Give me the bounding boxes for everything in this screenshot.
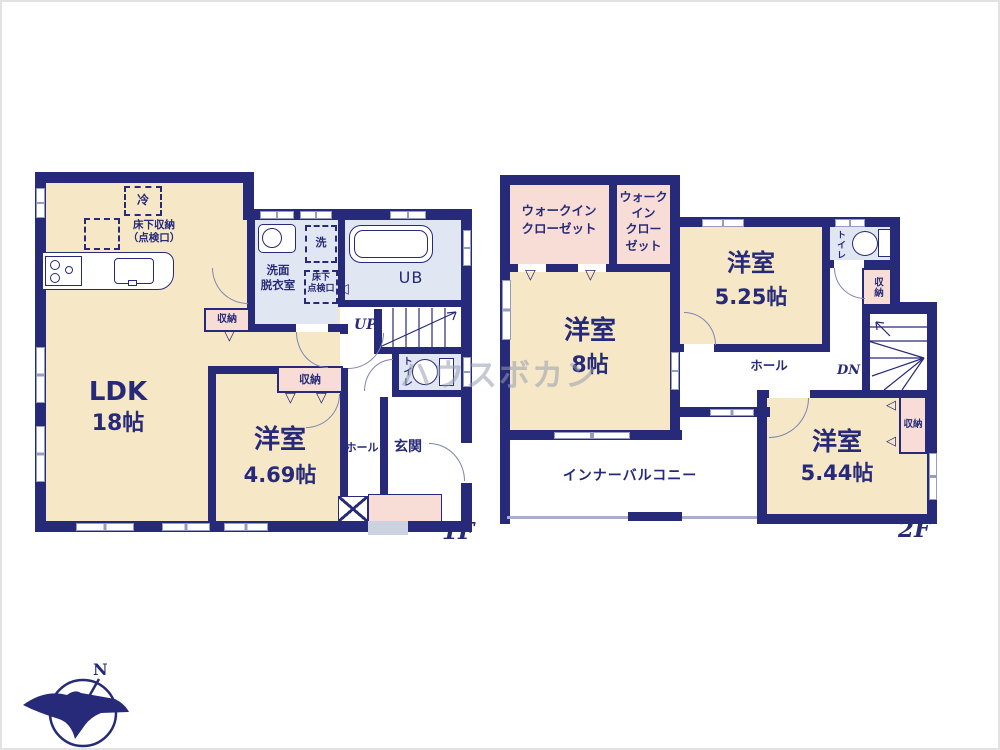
wic-small-line2: イン [631, 206, 655, 220]
label-washroom: 洗面 脱衣室 [254, 263, 302, 293]
stairs-down-2f [868, 314, 927, 390]
door-arc-toilet-2f [834, 268, 865, 299]
closet-bedroom-door-mark-2: ▽ [316, 391, 327, 405]
underfloor-storage-line1: 床下収納 [133, 219, 175, 231]
window-toilet-top-2f [835, 219, 865, 227]
window-room8-left [502, 280, 511, 340]
wall-washroom-bottom-a [254, 324, 296, 332]
wall-525-right [822, 217, 830, 352]
wic-small-door-mark: ▷ [670, 243, 680, 256]
door-arc-entrance [429, 443, 465, 481]
toilet-door-opening-2f [834, 260, 864, 268]
kitchen-faucet [128, 280, 137, 286]
window-room8-balcony [554, 432, 630, 439]
window-hall-balcony [710, 409, 754, 416]
washbasin-bowl [262, 228, 282, 248]
label-entrance: 玄関 [390, 439, 426, 457]
floorplan-image: 冷 床下収納 （点検口） 洗 床下 点検口 収納 収納 ▽ ▽ ▽ ◁ [0, 0, 1000, 750]
label-bedroom-1f-name: 洋室 [242, 424, 318, 457]
wic-small-line4: ゼット [625, 239, 661, 253]
wall-ub-bottom [338, 300, 461, 307]
closet-bedroom-door-mark-1: ▽ [285, 391, 296, 405]
room8-door-opening [671, 352, 679, 390]
toilet-tank-2f [878, 229, 891, 257]
wall-entrance-divider [380, 397, 388, 496]
label-up: UP [354, 317, 377, 333]
window-ub-right [463, 230, 471, 266]
underfloor-storage-line2: （点検口） [128, 232, 181, 244]
entrance-storage-x [338, 496, 368, 522]
hatch-line1: 床下 [312, 273, 330, 283]
underfloor-storage-label: 床下収納 （点検口） [110, 219, 198, 245]
wic-door-mark-2: ▽ [585, 268, 596, 282]
window-525-top [702, 219, 744, 227]
label-toilet-2f: トイレ [833, 229, 845, 260]
window-ldk-left-2 [36, 347, 45, 403]
closet-hall-2f-label: 収納 [871, 277, 883, 298]
label-balcony: インナーバルコニー [550, 468, 710, 486]
label-room8-name: 洋室 [550, 315, 630, 348]
window-ldk-bottom-1 [76, 523, 134, 531]
label-floor-2f: 2F [898, 516, 930, 543]
wall-2f-mid-vertical [670, 175, 680, 439]
label-544-size: 5.44帖 [794, 460, 880, 486]
hatch-line2: 点検口 [307, 284, 334, 294]
entrance-porch-step [368, 521, 408, 535]
fridge-label: 冷 [124, 193, 162, 208]
label-wic-small: ウォーク イン クロー ゼット [617, 189, 670, 254]
wic-large-line2: クローゼット [521, 221, 596, 236]
closet-ldk-door-mark: ▽ [224, 329, 235, 343]
toilet-bowl-2f [852, 231, 878, 256]
wic-large-line1: ウォークイン [521, 203, 596, 218]
label-ub: UB [388, 268, 434, 288]
wic-small-line1: ウォーク [619, 190, 667, 204]
bathtub-inner [354, 230, 428, 258]
window-washroom-top [260, 211, 294, 219]
window-bedroom-bottom [224, 523, 268, 531]
washer-label: 洗 [305, 236, 337, 250]
window-ldk-left-1 [36, 188, 45, 218]
stove-burner-1 [50, 260, 60, 270]
balcony-edge-segment [628, 512, 682, 521]
window-ldk-bottom-2 [162, 523, 210, 531]
label-dn: DN [837, 363, 860, 378]
compass-north-label: N [93, 660, 108, 679]
stairs-up-1f [380, 308, 460, 348]
label-ldk-size: 18帖 [62, 410, 174, 438]
stove-burner-3 [65, 266, 73, 274]
window-ub-top [390, 211, 426, 219]
compass: N [17, 657, 132, 750]
ub-door-mark: ◁ [338, 282, 349, 296]
label-544-name: 洋室 [802, 426, 872, 457]
label-wic-large: ウォークイン クローゼット [508, 202, 610, 237]
wall-2f-top-left [500, 175, 680, 185]
wall-525-bottom-b [714, 344, 830, 352]
closet-bedroom-1f: 収納 [277, 366, 343, 393]
closet-hall-2f: 収納 [862, 268, 892, 306]
wall-bedroom-top [216, 366, 277, 374]
closet-544: 収納 [899, 396, 927, 454]
stove-burner-2 [50, 273, 60, 283]
closet-ldk-label: 収納 [217, 314, 237, 327]
wall-ldk-bedroom-divider [208, 366, 216, 521]
wall-525-bottom-a [670, 344, 684, 352]
wall-toilet-left-1f [392, 354, 399, 390]
label-hall-2f: ホール [742, 358, 796, 374]
label-hall-1f: ホール [343, 441, 381, 455]
washroom-line2: 脱衣室 [261, 278, 296, 292]
closet-544-door-mark-2: ◁ [886, 435, 896, 448]
window-544-right [929, 453, 937, 500]
underfloor-hatch-label: 床下 点検口 [302, 273, 340, 296]
washroom-line1: 洗面 [267, 263, 290, 277]
window-ldk-left-3 [36, 426, 45, 482]
door-arc-toilet-1f [364, 359, 393, 391]
label-floor-1f: 1F [442, 518, 474, 545]
label-bedroom-1f-size: 4.69帖 [234, 462, 326, 488]
watermark: ハウスボカン [400, 350, 598, 395]
wall-hall-top [340, 324, 348, 334]
wic-door-mark-1: ▽ [525, 268, 536, 282]
window-washer-top [300, 211, 332, 219]
wall-1f-top-left [35, 172, 254, 183]
label-525-name: 洋室 [716, 248, 786, 278]
closet-544-door-mark-1: ◁ [886, 399, 896, 412]
closet-bedroom-1f-label: 収納 [299, 373, 321, 387]
washroom-door-opening [296, 324, 328, 332]
label-525-size: 5.25帖 [704, 284, 798, 310]
label-ldk-name: LDK [62, 376, 174, 409]
shoe-cabinet [368, 494, 442, 522]
wall-wic-divider [609, 175, 617, 264]
closet-544-label: 収納 [903, 419, 922, 431]
wic-small-line3: クロー [625, 222, 661, 236]
